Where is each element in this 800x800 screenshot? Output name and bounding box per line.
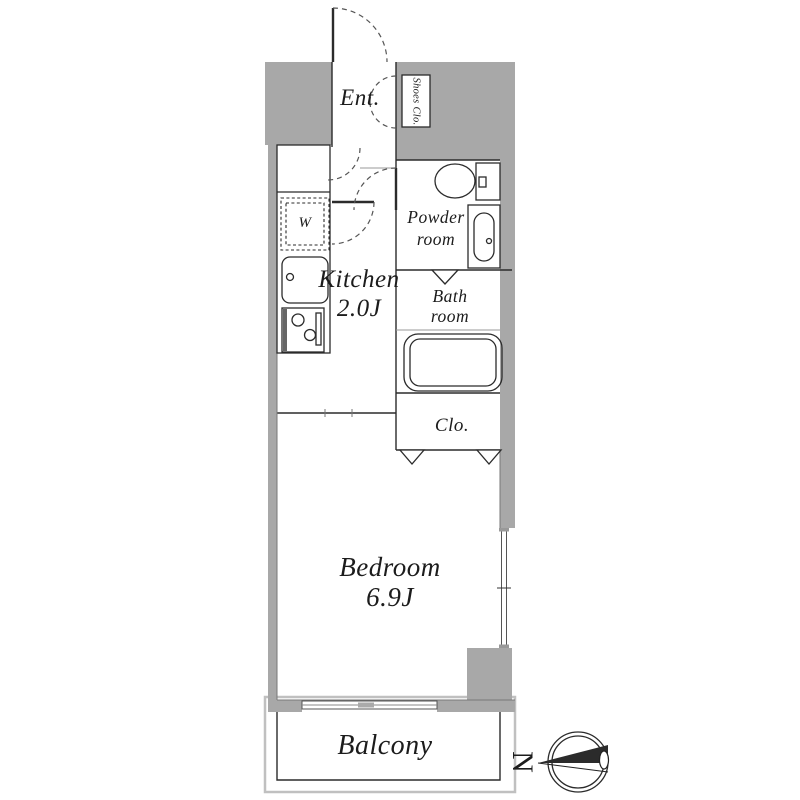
- balcony-label: Balcony: [285, 730, 485, 762]
- bedroom-label: Bedroom 6.9J: [290, 552, 490, 612]
- bedroom-side-window: [497, 528, 511, 648]
- kitchen-label: Kitchen 2.0J: [300, 265, 418, 323]
- kitchen-name: Kitchen: [300, 265, 418, 294]
- toilet: [435, 163, 500, 200]
- balcony-window: [302, 701, 437, 709]
- compass-north-label: N: [506, 751, 539, 773]
- bathtub: [404, 334, 502, 391]
- powder-door-arc: [354, 168, 396, 210]
- bath-room-label: Bath room: [412, 286, 488, 326]
- bedroom-size: 6.9J: [290, 582, 490, 612]
- entrance-door-arc: [333, 8, 387, 62]
- bath-door-mark: [432, 270, 458, 284]
- closet-label: Clo.: [412, 415, 492, 437]
- compass-pivot: [600, 751, 609, 769]
- kitchen-size: 2.0J: [300, 294, 418, 323]
- washer-space-label: W: [283, 215, 327, 231]
- closet-door-mark: [477, 450, 501, 464]
- hall-door-arc: [332, 202, 374, 244]
- floor-plan-drawing: N: [0, 0, 800, 800]
- bedroom-name: Bedroom: [290, 552, 490, 582]
- entrance-label: Ent.: [310, 85, 410, 111]
- compass: N: [506, 732, 609, 792]
- closet-door-mark: [400, 450, 424, 464]
- doors: [328, 8, 396, 244]
- floor-plan: N Ent. Shoes Clo. Kitchen 2.0J Powder ro…: [0, 0, 800, 800]
- powder-room-label: Powder room: [398, 206, 474, 250]
- burner: [305, 330, 316, 341]
- shoes-closet-label: Shoes Clo.: [410, 76, 423, 128]
- entry-hall-arc: [328, 148, 360, 180]
